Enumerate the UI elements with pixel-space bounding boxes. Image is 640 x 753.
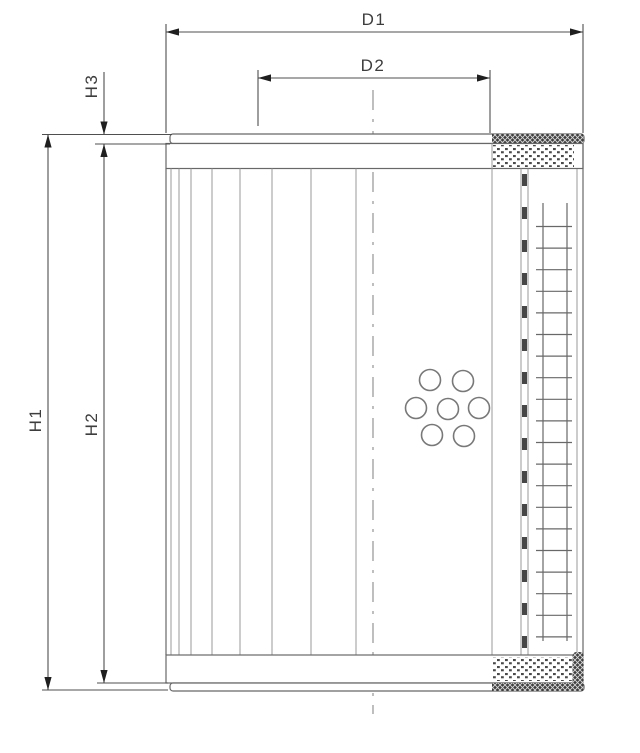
h2-arrow-top: [100, 144, 107, 157]
section-right-half: [492, 144, 583, 684]
perforation-hole: [422, 425, 443, 446]
technical-drawing-canvas: D1 D2 H1 H2 H3: [0, 0, 640, 753]
h2-arrow-bottom: [100, 670, 107, 683]
d1-arrow-left: [166, 28, 179, 35]
h1-arrow-bottom: [44, 677, 51, 690]
outer-wall: [577, 144, 583, 684]
dimension-label-d2: D2: [361, 56, 386, 75]
h1-arrow-top: [44, 135, 51, 148]
h3-arrow-down: [100, 122, 107, 135]
perforation-hole: [406, 398, 427, 419]
perforation-hole: [469, 398, 490, 419]
media-ladder: [536, 203, 572, 641]
filter-element-drawing: D1 D2 H1 H2 H3: [0, 0, 640, 753]
d2-arrow-left: [258, 74, 271, 81]
perforation-hole: [420, 370, 441, 391]
top-end-cap-section-hatch: [492, 145, 574, 167]
d1-arrow-right: [570, 28, 583, 35]
d2-arrow-right: [477, 74, 490, 81]
filter-element-body: [166, 90, 584, 714]
bottom-end-cap-section-hatch: [492, 657, 574, 681]
dimension-label-h3: H3: [82, 74, 101, 99]
dimension-label-h2: H2: [82, 412, 101, 437]
top-flange-section-hatch: [492, 134, 583, 144]
dimension-h3: H3: [82, 72, 108, 135]
perforation-holes: [406, 370, 490, 447]
core-tube: [521, 169, 528, 656]
pleat-lines: [166, 169, 356, 656]
perforation-hole: [438, 399, 459, 420]
perforation-hole: [453, 371, 474, 392]
dimension-d2: D2: [258, 56, 490, 133]
bottom-flange-section-hatch: [492, 683, 583, 691]
bottom-flange-right-wrap-hatch: [573, 652, 584, 691]
bottom-end-cap: [166, 655, 583, 683]
perforation-hole: [454, 426, 475, 447]
dimension-label-h1: H1: [26, 408, 45, 433]
top-end-cap: [166, 144, 583, 169]
dimension-h2: H2: [82, 144, 170, 683]
dimension-label-d1: D1: [362, 10, 387, 29]
